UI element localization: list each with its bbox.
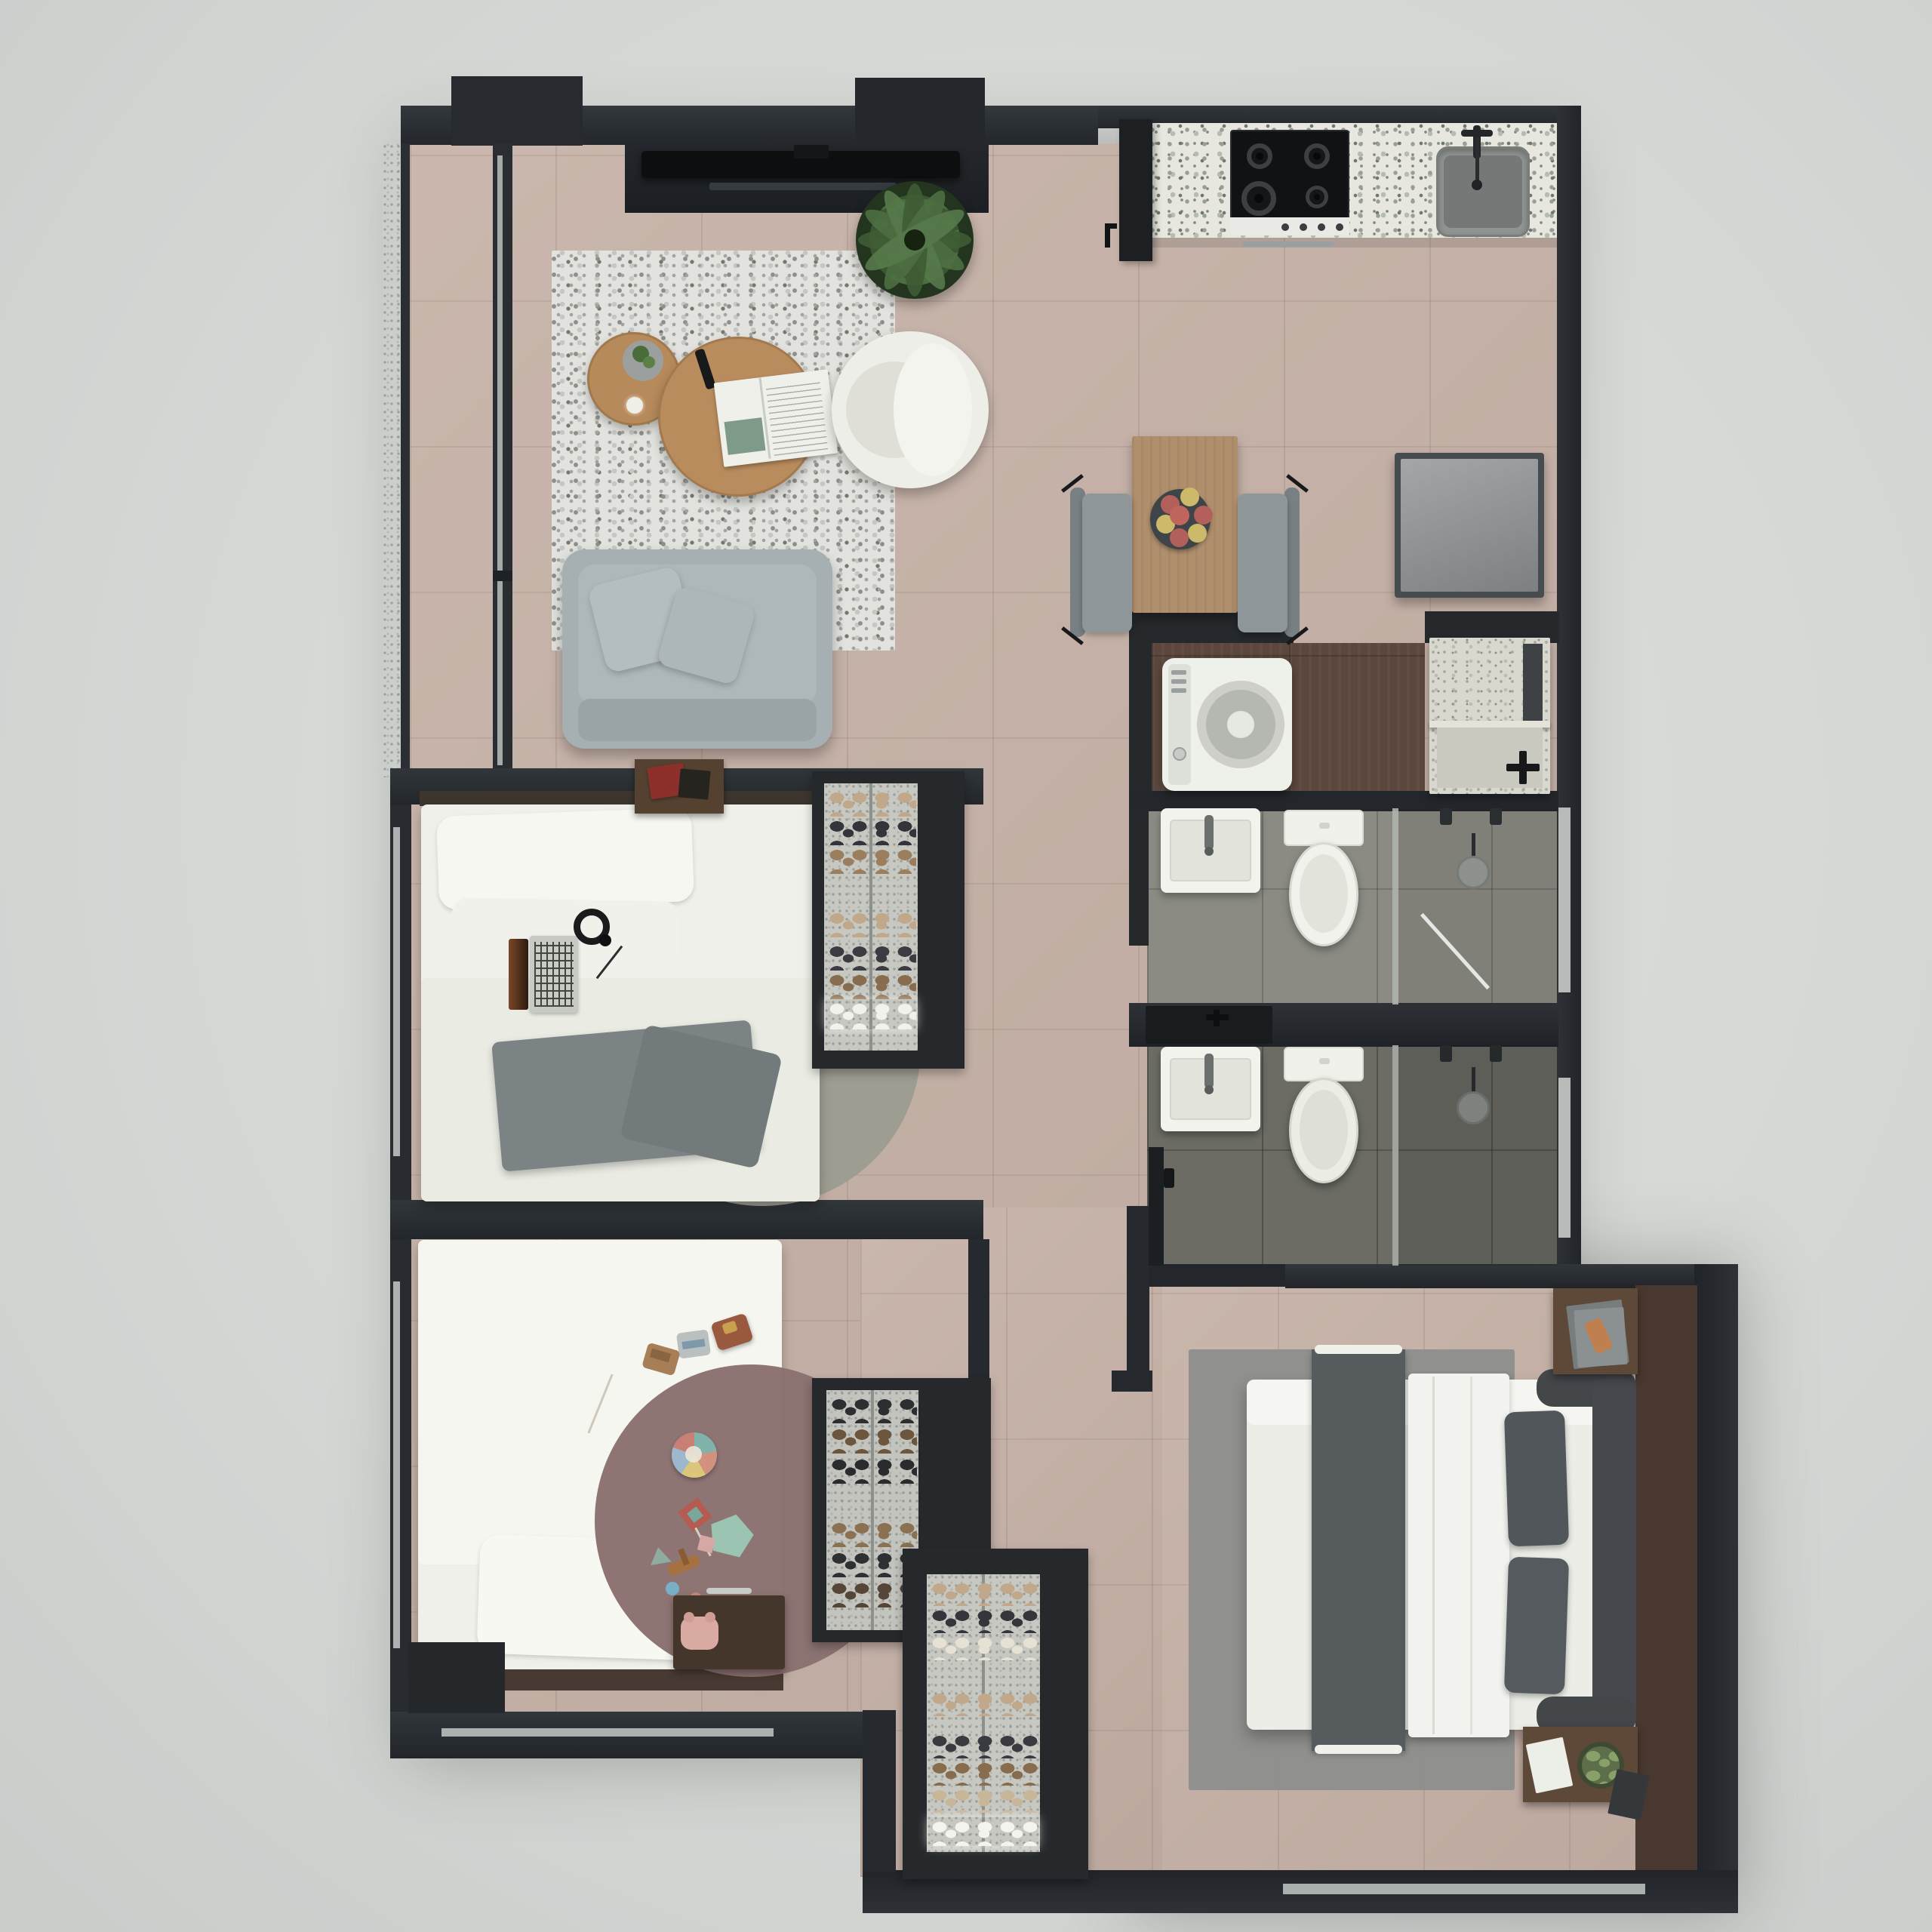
closet2-clothes-row-3 bbox=[828, 1455, 917, 1484]
washer-button-2-icon bbox=[1171, 679, 1186, 684]
plant-center bbox=[904, 229, 925, 251]
fridge bbox=[1401, 459, 1538, 592]
kitchen-faucet-head bbox=[1472, 180, 1482, 190]
candle-icon bbox=[626, 397, 643, 414]
bath1-shower-head-icon bbox=[1457, 856, 1490, 889]
stove-control-strip bbox=[1230, 217, 1349, 235]
bath2-valve-1-icon bbox=[1440, 1045, 1452, 1062]
kitchen-faucet-hose bbox=[1475, 137, 1479, 183]
apple-red-1-icon bbox=[1194, 506, 1213, 525]
stove-knob-2-icon bbox=[1300, 223, 1307, 231]
bath2-faucet-icon bbox=[1204, 1054, 1214, 1088]
window-glass-living bbox=[497, 155, 503, 765]
wall-bath-left-upper bbox=[1129, 810, 1149, 946]
window-bath1-right bbox=[1558, 808, 1571, 992]
master-folded-sheet bbox=[1408, 1374, 1509, 1737]
bath1-toilet-flush-icon bbox=[1319, 823, 1330, 829]
closet1-clothes-row-5 bbox=[826, 942, 916, 971]
closet1-clothes-row-1 bbox=[826, 788, 916, 817]
entry-closet-row-7 bbox=[928, 1786, 1038, 1813]
entry-closet-row-8 bbox=[928, 1817, 1038, 1846]
bedroom1-book-dark bbox=[678, 768, 710, 799]
tv-media-box-icon bbox=[794, 145, 829, 158]
stove-knob-3-icon bbox=[1318, 223, 1325, 231]
between-bath-counter bbox=[1146, 1006, 1272, 1044]
entry-closet-row-3 bbox=[928, 1633, 1038, 1660]
closet1-clothes-row-4 bbox=[826, 909, 916, 937]
window-master-bottom bbox=[1283, 1884, 1645, 1894]
master-plant-leaves bbox=[1582, 1746, 1620, 1784]
entry-closet-row-6 bbox=[928, 1758, 1038, 1786]
kitchen-sink-basin bbox=[1444, 155, 1522, 228]
bedroom1-headboard bbox=[420, 791, 821, 806]
bath2-shower-arm bbox=[1472, 1067, 1475, 1094]
headphones-pad bbox=[599, 934, 611, 946]
washer-hub bbox=[1227, 711, 1254, 738]
armchair-cushion bbox=[894, 343, 972, 476]
washer-button-3-icon bbox=[1171, 688, 1186, 693]
wall-master-right bbox=[1694, 1264, 1738, 1913]
window-bedroom1-left bbox=[393, 827, 400, 1156]
bath1-toilet-seat bbox=[1300, 854, 1348, 933]
bath1-faucet-icon bbox=[1204, 815, 1214, 850]
apple-center-icon bbox=[1170, 506, 1189, 525]
bath2-valve-2-icon bbox=[1490, 1045, 1502, 1062]
shelf-cross-handle-v-icon bbox=[1519, 751, 1527, 784]
master-sheet-foldline-2 bbox=[1470, 1377, 1472, 1734]
counter-faucet-v-icon bbox=[1214, 1010, 1220, 1026]
master-runner-ruffle-bottom bbox=[1315, 1745, 1402, 1754]
closet1-clothes-row-7 bbox=[826, 999, 916, 1029]
wall-left-upper bbox=[401, 143, 410, 777]
window-bedroom2-left bbox=[393, 1281, 400, 1648]
closet1-clothes-row-2 bbox=[826, 817, 916, 845]
bath2-toilet-seat bbox=[1300, 1090, 1348, 1170]
bedroom2-bench bbox=[408, 1642, 505, 1713]
laundry-shelf-divider bbox=[1429, 721, 1550, 728]
washer-button-1-icon bbox=[1171, 670, 1186, 675]
wall-laundry-left bbox=[1129, 643, 1152, 794]
bath2-shower-head-icon bbox=[1457, 1091, 1490, 1124]
bath2-shower-zone-shade bbox=[1398, 1045, 1557, 1266]
toy-dot-blue-icon bbox=[666, 1582, 679, 1595]
bath1-valve-1-icon bbox=[1440, 808, 1452, 825]
stove-knob-1-icon bbox=[1281, 223, 1289, 231]
balcony-edge-concrete bbox=[383, 143, 401, 777]
bath2-glass-partition bbox=[1392, 1045, 1398, 1266]
master-pillow-2 bbox=[1504, 1557, 1569, 1695]
entry-closet-row-4 bbox=[928, 1689, 1038, 1716]
laptop-keyboard bbox=[534, 942, 574, 1007]
bath2-toilet-tank bbox=[1284, 1047, 1364, 1081]
stove-burner-cap-3 bbox=[1254, 194, 1263, 203]
bath1-faucet-knob bbox=[1204, 847, 1214, 856]
stove-knob-4-icon bbox=[1336, 223, 1343, 231]
entry-closet-row-2 bbox=[928, 1606, 1038, 1633]
entry-door-handle-stem bbox=[1105, 223, 1110, 248]
wall-bedroom2-right-upper bbox=[968, 1239, 989, 1381]
toy-plush-ear-1 bbox=[684, 1612, 694, 1623]
tv-shelf bbox=[709, 183, 897, 190]
apple-yellow-1-icon bbox=[1180, 488, 1199, 506]
master-runner-ruffle-top bbox=[1315, 1345, 1402, 1354]
wall-entry-step bbox=[863, 1710, 896, 1872]
bath1-shower-arm bbox=[1472, 833, 1475, 859]
window-bedroom2-bottom bbox=[441, 1728, 774, 1737]
toy-plush-ear-2 bbox=[705, 1612, 715, 1623]
bath2-door-leaf bbox=[1149, 1147, 1164, 1266]
closet2-clothes-row-4 bbox=[828, 1518, 917, 1547]
bath1-glass-partition bbox=[1392, 808, 1398, 1004]
washer-dial-icon bbox=[1173, 747, 1186, 761]
bedroom1-pillow-1 bbox=[436, 808, 694, 910]
bath2-toilet-flush-icon bbox=[1319, 1058, 1330, 1064]
apple-yellow-2-icon bbox=[1188, 524, 1207, 543]
wall-bedroom-divider bbox=[390, 1200, 983, 1239]
dining-chair-right-seat bbox=[1238, 494, 1287, 632]
dining-chair-left-seat bbox=[1082, 494, 1132, 632]
closet2-clothes-row-1 bbox=[828, 1395, 917, 1423]
closet1-clothes-row-3 bbox=[826, 845, 916, 874]
bath1-valve-2-icon bbox=[1490, 808, 1502, 825]
wall-pier-topleft bbox=[451, 76, 583, 146]
oven-handle bbox=[1242, 241, 1334, 247]
entry-door-leaf bbox=[1119, 119, 1152, 261]
master-sheet-foldline-1 bbox=[1432, 1377, 1435, 1734]
floor-plan-scene bbox=[0, 0, 1932, 1932]
apple-red-2-icon bbox=[1170, 528, 1189, 547]
window-mullion-living bbox=[493, 571, 512, 581]
bath2-faucet-knob bbox=[1204, 1085, 1214, 1094]
kitchen-counter-shadow bbox=[1147, 238, 1557, 248]
entry-closet-row-5 bbox=[928, 1731, 1038, 1758]
toy-ball-star bbox=[685, 1446, 702, 1463]
closet2-clothes-row-2 bbox=[828, 1425, 917, 1454]
bath2-door-handle-icon bbox=[1164, 1168, 1174, 1188]
magazine-photo bbox=[724, 417, 766, 455]
closet1-clothes-row-6 bbox=[826, 971, 916, 999]
master-headboard-side bbox=[1592, 1375, 1636, 1730]
wall-entry-foot bbox=[1112, 1371, 1152, 1392]
stove-burner-cap-1 bbox=[1256, 152, 1263, 160]
window-bath2-right bbox=[1558, 1078, 1571, 1238]
magazine-text-lines bbox=[766, 380, 829, 456]
master-runner-blanket bbox=[1312, 1349, 1405, 1751]
stove-burner-cap-4 bbox=[1314, 194, 1320, 200]
sofa-backrest bbox=[578, 699, 817, 741]
wall-entry-left-stub bbox=[1127, 1206, 1149, 1374]
entry-closet-row-1 bbox=[928, 1579, 1038, 1606]
toy-box-handle bbox=[706, 1588, 752, 1594]
laundry-shelf-lower bbox=[1437, 728, 1543, 788]
laundry-shelf-side-shadow bbox=[1523, 644, 1543, 724]
laptop-screen-icon bbox=[509, 939, 528, 1010]
window-band-living bbox=[493, 143, 512, 777]
master-pillow-1 bbox=[1504, 1411, 1569, 1547]
stove-burner-cap-2 bbox=[1313, 152, 1321, 160]
plant-sprig-leaf2-icon bbox=[643, 356, 655, 368]
